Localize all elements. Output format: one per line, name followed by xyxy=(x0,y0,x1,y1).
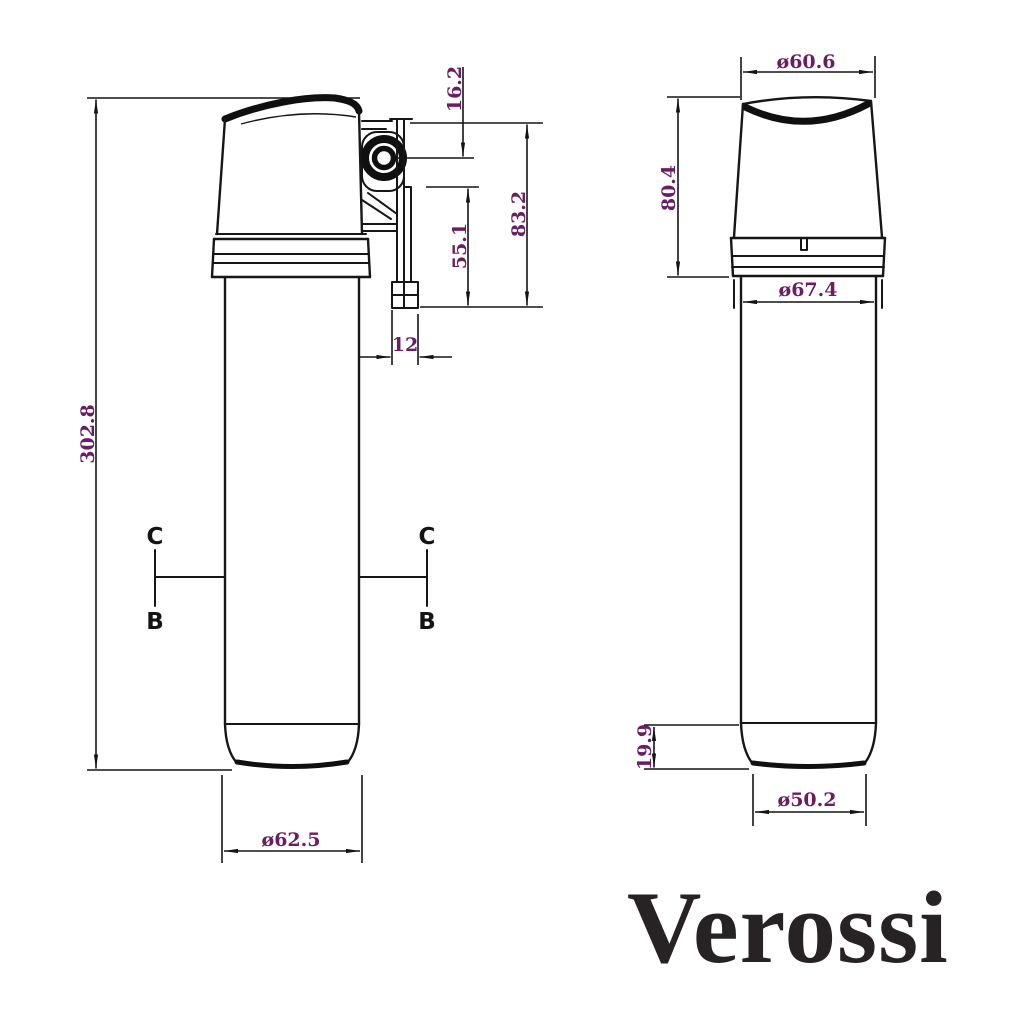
dim-base-diameter-label: ø50.2 xyxy=(778,789,837,811)
collar-left-edge xyxy=(731,238,733,276)
dim-head-height-label: 80.4 xyxy=(658,165,680,211)
port-lower-arm xyxy=(362,224,397,231)
bottom-cap-edge xyxy=(237,762,347,767)
mounting-bracket xyxy=(390,119,418,308)
collar-right-edge xyxy=(368,239,370,277)
dim-bracket-thickness-label: 12 xyxy=(392,334,418,356)
cartridge-body-front xyxy=(741,276,876,767)
collar-right-edge xyxy=(883,238,885,276)
head-top-edge xyxy=(225,98,359,119)
bottom-cap-right xyxy=(347,724,359,763)
dim-overall-height-label: 302.8 xyxy=(77,404,99,464)
dim-head-assembly-label: 83.2 xyxy=(508,191,530,237)
port-inner-ring xyxy=(375,149,394,168)
section-marker-right: C B xyxy=(360,524,436,635)
collar-band-lines xyxy=(213,254,369,263)
bottom-cap-right xyxy=(864,723,876,764)
head-right-edge xyxy=(871,101,882,237)
dim-body-diameter-label: ø62.5 xyxy=(262,829,321,851)
head-left-edge xyxy=(217,119,225,234)
dim-base-height-label: 19.9 xyxy=(634,724,656,770)
side-view-dimensions: 302.8 16.2 83.2 55.1 12 ø62.5 xyxy=(77,66,543,863)
dim-top-diameter-label: ø60.6 xyxy=(777,51,836,73)
section-marker-line xyxy=(360,550,427,606)
collar-side xyxy=(212,239,370,277)
head-top-arc xyxy=(743,97,871,104)
bracket-foot xyxy=(392,282,418,308)
section-label-b: B xyxy=(418,609,436,635)
side-view: 302.8 16.2 83.2 55.1 12 ø62.5 xyxy=(77,66,543,863)
section-label-c: C xyxy=(419,524,436,550)
front-view-dimensions: ø60.6 80.4 ø67.4 19.9 ø50.2 xyxy=(634,51,875,826)
bottom-cap-left xyxy=(741,723,753,764)
section-label-c: C xyxy=(147,524,164,550)
head-top-inner-line xyxy=(241,114,356,124)
collar-left-edge xyxy=(212,239,214,277)
collar-notch xyxy=(801,239,807,250)
bottom-cap-edge xyxy=(753,763,864,767)
cartridge-head-front xyxy=(734,97,882,237)
front-view: ø60.6 80.4 ø67.4 19.9 ø50.2 xyxy=(634,51,885,826)
brand-logo: Verossi xyxy=(627,869,967,987)
section-marker-line xyxy=(155,550,224,606)
section-label-b: B xyxy=(146,609,164,635)
port-support-lines xyxy=(362,193,397,219)
dim-port-offset-label: 16.2 xyxy=(444,66,466,112)
cartridge-head-side xyxy=(216,98,366,234)
collar-band-lines xyxy=(732,256,884,267)
dim-bracket-plate-label: 55.1 xyxy=(449,223,471,269)
head-left-edge xyxy=(734,104,743,237)
head-top-crescent xyxy=(745,104,868,121)
cartridge-body-side xyxy=(225,277,359,767)
dim-collar-diameter-label: ø67.4 xyxy=(779,279,838,301)
bottom-cap-left xyxy=(225,724,237,763)
port-arm-top xyxy=(362,121,392,129)
technical-drawing-page: 302.8 16.2 83.2 55.1 12 ø62.5 xyxy=(0,0,1024,1024)
section-marker-left: C B xyxy=(146,524,224,635)
